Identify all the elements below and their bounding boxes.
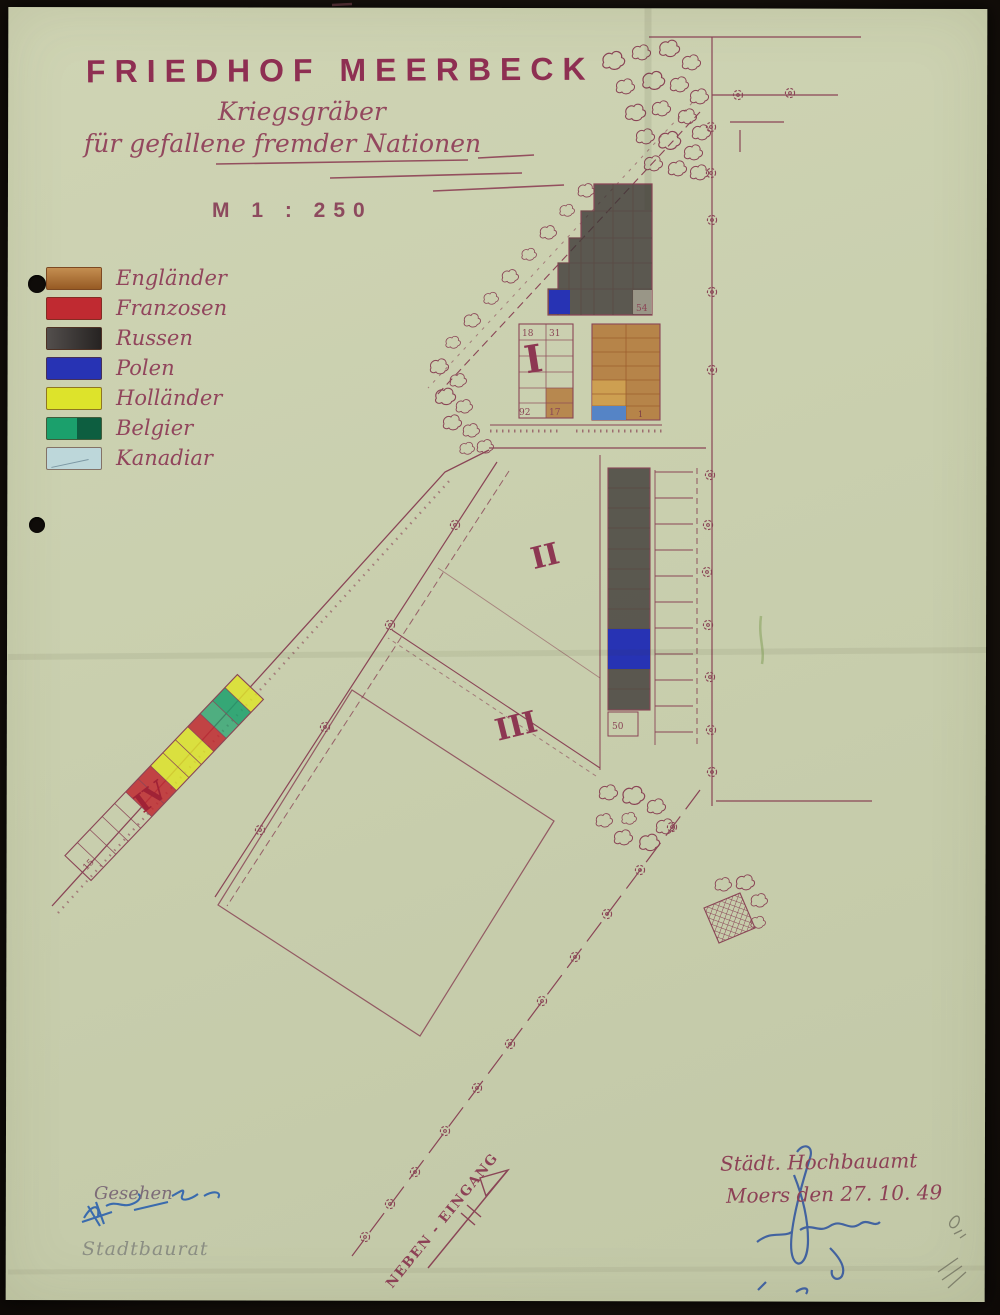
legend-label: Polen bbox=[116, 356, 175, 380]
legend-swatch-belgier bbox=[46, 417, 102, 440]
legend-item-kanadiar: Kanadiar bbox=[46, 443, 227, 473]
scanned-document-background: { "header": { "title": "FRIEDHOF MEERBEC… bbox=[0, 0, 1000, 1315]
legend-swatch-russen bbox=[46, 327, 102, 350]
legend-swatch-englaender bbox=[46, 267, 102, 290]
legend-swatch-kanadiar bbox=[46, 447, 102, 470]
legend-item-franzosen: Franzosen bbox=[46, 293, 227, 323]
legend-label: Kanadiar bbox=[116, 446, 213, 470]
map-title: FRIEDHOF MEERBECK bbox=[86, 51, 595, 91]
map-subtitle-line2: für gefallene fremder Nationen bbox=[84, 129, 481, 158]
legend-swatch-polen bbox=[46, 357, 102, 380]
place-and-date: Moers den 27. 10. 49 bbox=[726, 1180, 943, 1208]
legend-item-russen: Russen bbox=[46, 323, 227, 353]
nation-color-legend: Engländer Franzosen Russen Polen Holländ… bbox=[46, 263, 227, 473]
legend-label: Belgier bbox=[116, 416, 193, 440]
legend-label: Franzosen bbox=[116, 296, 227, 320]
legend-swatch-franzosen bbox=[46, 297, 102, 320]
legend-swatch-hollaender bbox=[46, 387, 102, 410]
legend-item-polen: Polen bbox=[46, 353, 227, 383]
legend-label: Holländer bbox=[116, 386, 222, 410]
paper-edge-mark bbox=[332, 4, 352, 5]
office-name: Städt. Hochbauamt bbox=[720, 1148, 918, 1175]
punch-hole-top bbox=[28, 275, 46, 293]
legend-item-englaender: Engländer bbox=[46, 263, 227, 293]
approval-note: Gesehen bbox=[94, 1183, 173, 1204]
approver-title: Stadtbaurat bbox=[82, 1238, 209, 1260]
paper-sheet bbox=[6, 7, 988, 1302]
punch-hole-bottom bbox=[29, 517, 45, 533]
legend-item-hollaender: Holländer bbox=[46, 383, 227, 413]
map-scale-label: M 1 : 250 bbox=[212, 199, 373, 223]
legend-label: Russen bbox=[116, 326, 193, 350]
legend-label: Engländer bbox=[116, 266, 227, 290]
legend-item-belgier: Belgier bbox=[46, 413, 227, 443]
map-subtitle-line1: Kriegsgräber bbox=[218, 97, 386, 126]
